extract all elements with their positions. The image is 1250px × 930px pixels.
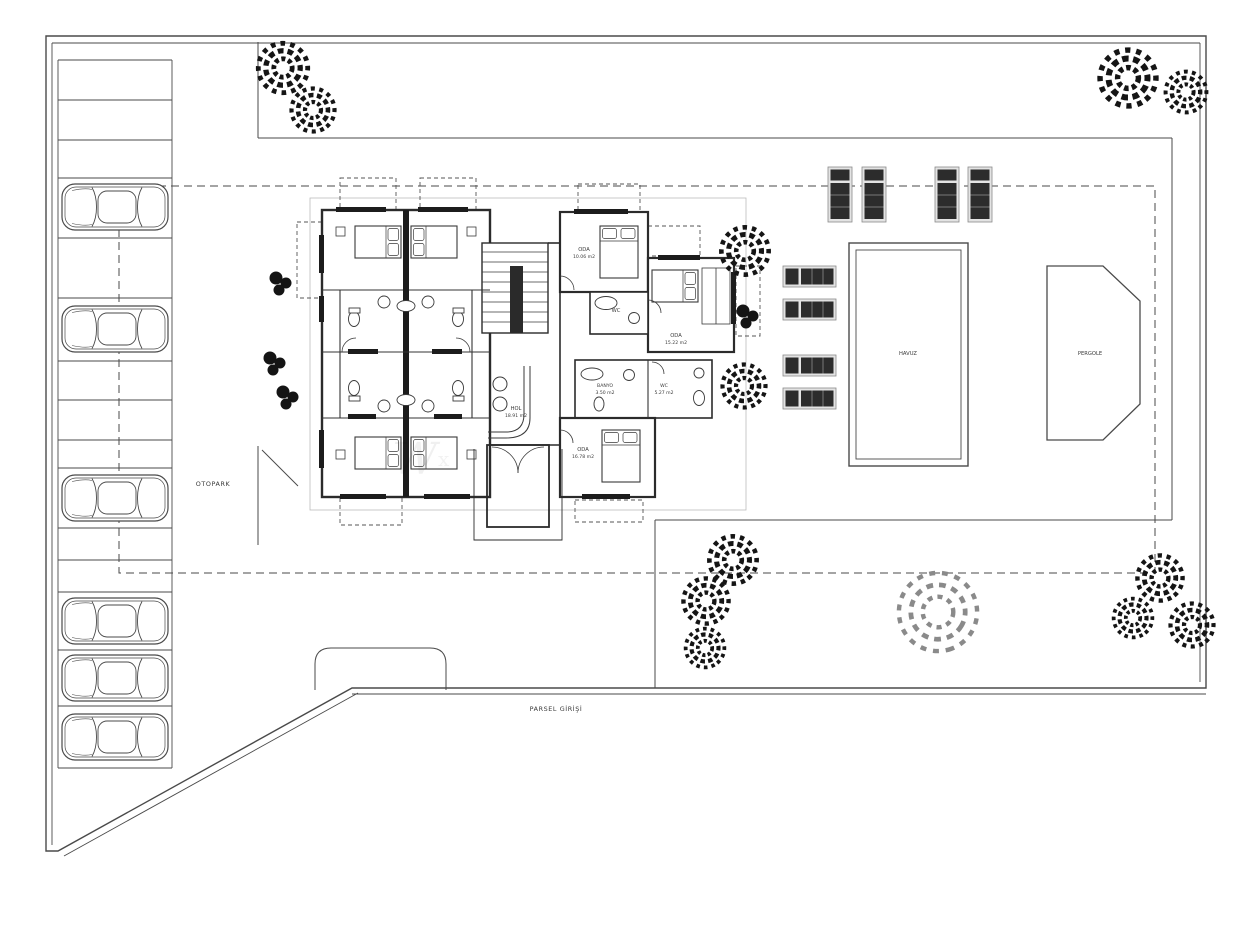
watermark: W <box>392 434 441 485</box>
bush <box>277 386 299 410</box>
label-otopark: OTOPARK <box>196 480 231 488</box>
room-label-banyo-name: BANYO <box>597 383 613 389</box>
tree <box>1163 596 1222 655</box>
parked-cars <box>62 184 168 760</box>
tree <box>701 528 766 593</box>
room-label-hol-name: HOL <box>511 406 522 412</box>
car <box>62 475 168 521</box>
car <box>62 655 168 701</box>
room-label-oda-right-area: 15.22 m2 <box>665 340 687 346</box>
car <box>62 306 168 352</box>
bush <box>264 352 286 376</box>
tree <box>1090 40 1166 116</box>
room-label-oda-bottom-name: ODA <box>577 447 589 453</box>
bed <box>602 430 640 482</box>
sun-lounger <box>783 355 836 376</box>
entrance-porch <box>474 445 562 540</box>
site-plan-page: W x OTOPARK HAVUZ PERGOLE PARSEL GİRİŞİ … <box>0 0 1250 930</box>
sun-lounger <box>783 299 836 320</box>
watermark-2: x <box>438 447 450 471</box>
entrance-island <box>315 648 446 690</box>
sun-lounger <box>968 167 992 222</box>
sun-lounger <box>935 167 959 222</box>
room-label-oda-right-name: ODA <box>670 333 682 339</box>
bed <box>652 270 698 302</box>
tree <box>675 570 737 632</box>
building <box>297 178 760 540</box>
room-label-oda-top-area: 10.06 m2 <box>573 254 595 260</box>
room-label-wc-right-area: 5.27 m2 <box>654 390 673 396</box>
bed <box>411 226 457 258</box>
bush <box>737 305 759 329</box>
room-label-oda-top-name: ODA <box>578 247 590 253</box>
site-plan-drawing: W x OTOPARK HAVUZ PERGOLE PARSEL GİRİŞİ … <box>0 0 1250 930</box>
room-label-hol-area: 18.91 m2 <box>505 413 527 419</box>
tree <box>679 622 732 675</box>
bed <box>600 226 638 278</box>
label-havuz: HAVUZ <box>899 351 917 357</box>
sun-lounger <box>828 167 852 222</box>
room-label-banyo-area: 3.50 m2 <box>595 390 614 396</box>
tree-light <box>888 562 988 662</box>
car <box>62 714 168 760</box>
car <box>62 184 168 230</box>
room-label-wc-top-name: WC <box>612 308 621 314</box>
room-label-wc-right-name: WC <box>660 383 668 389</box>
sun-lounger <box>783 266 836 287</box>
bush <box>270 272 292 296</box>
label-parsel-girisi: PARSEL GİRİŞİ <box>530 704 583 713</box>
tree <box>1129 547 1191 609</box>
label-pergole: PERGOLE <box>1078 351 1102 357</box>
sun-lounger <box>783 388 836 409</box>
bed <box>355 226 401 258</box>
car <box>62 598 168 644</box>
hol-curved-counter <box>488 366 530 438</box>
tree <box>715 357 774 416</box>
room-label-oda-bottom-area: 16.78 m2 <box>572 454 594 460</box>
sun-lounger <box>862 167 886 222</box>
